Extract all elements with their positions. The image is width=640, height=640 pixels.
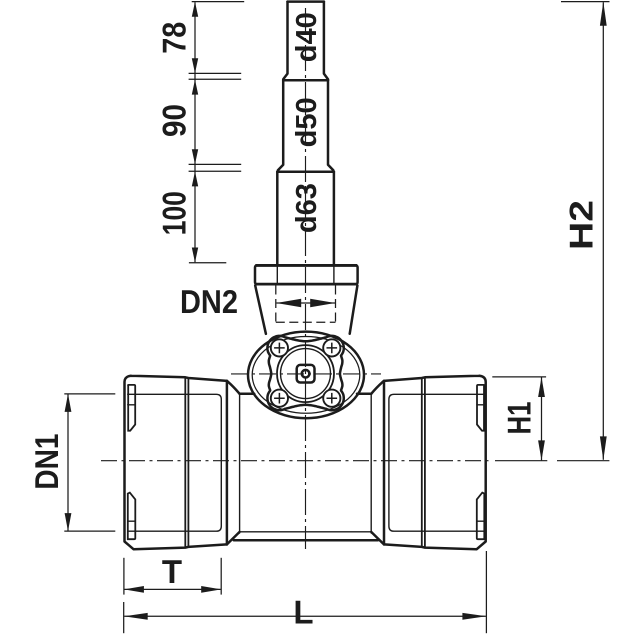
svg-text:d63: d63 xyxy=(291,183,323,233)
svg-text:DN2: DN2 xyxy=(180,283,238,320)
svg-text:H1: H1 xyxy=(500,402,537,435)
svg-text:d40: d40 xyxy=(291,12,323,62)
svg-text:T: T xyxy=(162,553,182,590)
svg-text:DN1: DN1 xyxy=(28,434,65,490)
svg-text:L: L xyxy=(293,594,313,631)
svg-text:100: 100 xyxy=(156,191,193,235)
svg-text:78: 78 xyxy=(156,22,193,54)
svg-text:d50: d50 xyxy=(291,97,323,147)
svg-text:H2: H2 xyxy=(563,200,600,250)
svg-text:90: 90 xyxy=(156,104,193,137)
